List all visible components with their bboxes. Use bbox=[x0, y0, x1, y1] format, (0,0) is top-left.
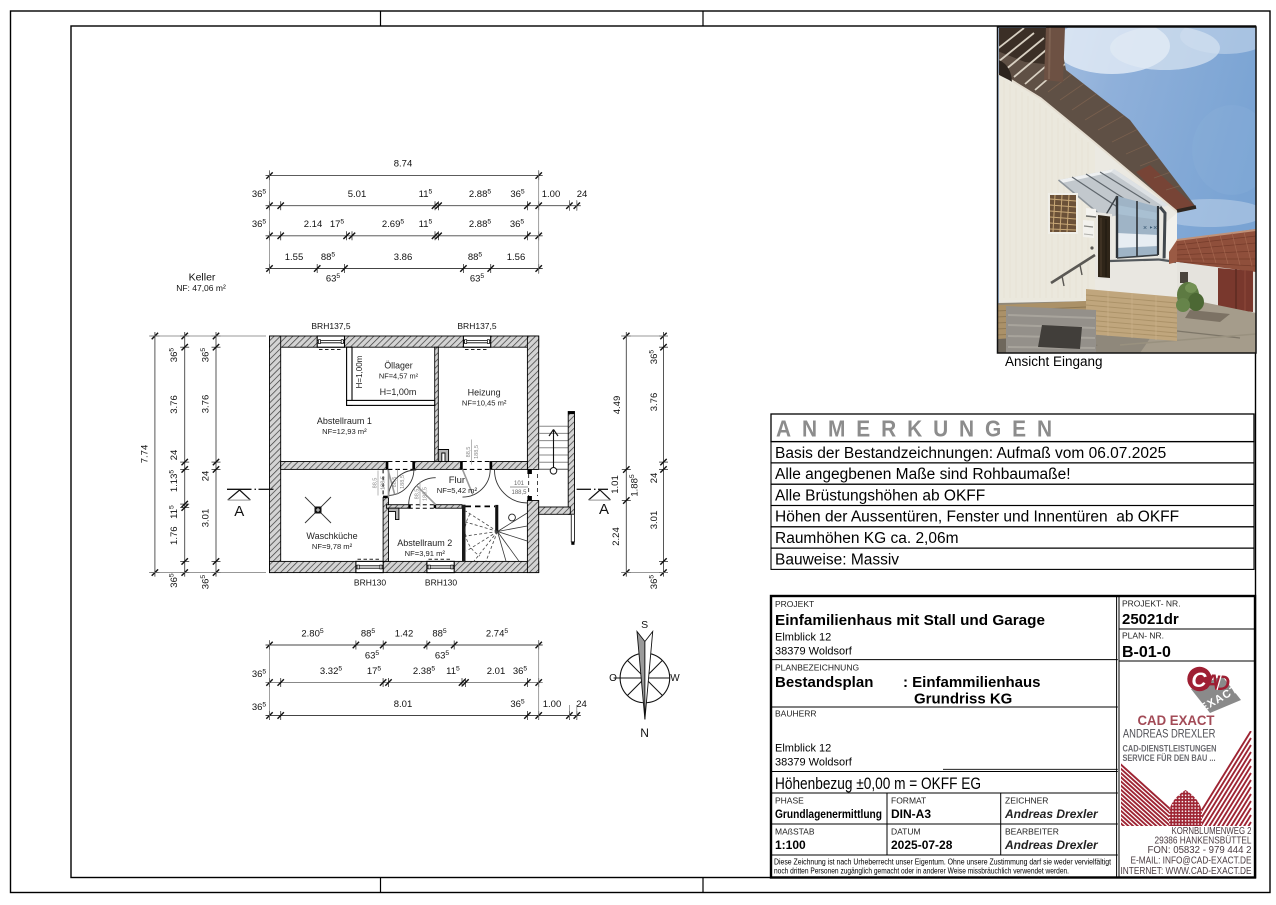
svg-text:88,5: 88,5 bbox=[415, 489, 421, 500]
svg-text:PROJEKT: PROJEKT bbox=[775, 599, 814, 609]
svg-text:Abstellraum 2: Abstellraum 2 bbox=[397, 538, 452, 548]
svg-text:NF=9,78 m²: NF=9,78 m² bbox=[312, 542, 353, 551]
svg-text:24: 24 bbox=[576, 699, 587, 710]
svg-text:88,5: 88,5 bbox=[373, 478, 379, 489]
svg-text:3.76: 3.76 bbox=[169, 395, 180, 414]
svg-text:A: A bbox=[599, 501, 609, 518]
svg-text:Höhen der Aussentüren, Fenster: Höhen der Aussentüren, Fenster und Innen… bbox=[775, 509, 1179, 526]
svg-text:B-01-0: B-01-0 bbox=[1122, 644, 1171, 661]
svg-text:1.01: 1.01 bbox=[610, 475, 621, 494]
svg-text:DATUM: DATUM bbox=[891, 827, 921, 837]
svg-text:1:100: 1:100 bbox=[775, 838, 806, 852]
svg-text:INTERNET: WWW.CAD-EXACT.DE: INTERNET: WWW.CAD-EXACT.DE bbox=[1121, 866, 1252, 877]
svg-text:MAßSTAB: MAßSTAB bbox=[775, 827, 815, 837]
svg-text:D: D bbox=[1215, 672, 1230, 695]
svg-text:Ansicht Eingang: Ansicht Eingang bbox=[1005, 354, 1103, 369]
svg-text:BRH137,5: BRH137,5 bbox=[311, 321, 350, 331]
svg-text:PLANBEZEICHNUNG: PLANBEZEICHNUNG bbox=[775, 663, 859, 673]
svg-text:NF=12,93 m²: NF=12,93 m² bbox=[322, 427, 367, 436]
svg-text:Basis der Bestandzeichnungen:: Basis der Bestandzeichnungen: Aufmaß vom… bbox=[775, 445, 1166, 462]
svg-text:Diese Zeichnung ist nach Urheb: Diese Zeichnung ist nach Urheberrecht un… bbox=[774, 858, 1112, 867]
svg-text:W: W bbox=[670, 673, 680, 684]
svg-text:Bestandsplan: Bestandsplan bbox=[775, 674, 873, 691]
svg-text:188,5: 188,5 bbox=[474, 445, 480, 459]
svg-text:7.74: 7.74 bbox=[140, 445, 151, 464]
svg-text:NF=5,42 m²: NF=5,42 m² bbox=[437, 486, 478, 495]
svg-text:Waschküche: Waschküche bbox=[306, 531, 357, 541]
svg-text:Öllager: Öllager bbox=[384, 361, 412, 371]
svg-text:Alle Brüstungshöhen ab OKFF: Alle Brüstungshöhen ab OKFF bbox=[775, 487, 985, 504]
svg-text:1.00: 1.00 bbox=[542, 189, 561, 200]
svg-text:Elmblick 12: Elmblick 12 bbox=[775, 632, 831, 644]
svg-text:24: 24 bbox=[577, 189, 588, 200]
svg-text:O: O bbox=[609, 673, 617, 684]
svg-text:PHASE: PHASE bbox=[775, 796, 804, 806]
svg-text:BRH130: BRH130 bbox=[354, 578, 386, 588]
svg-text:88,5: 88,5 bbox=[466, 447, 472, 458]
svg-text:188,5: 188,5 bbox=[400, 475, 406, 489]
svg-text:PLAN- NR.: PLAN- NR. bbox=[1122, 631, 1164, 641]
svg-text:ANMERKUNGEN: ANMERKUNGEN bbox=[776, 416, 1063, 442]
svg-text:Andreas Drexler: Andreas Drexler bbox=[1004, 807, 1099, 821]
svg-text:2.24: 2.24 bbox=[611, 527, 622, 546]
svg-text:188,5: 188,5 bbox=[423, 487, 429, 501]
svg-text:CAD EXACT: CAD EXACT bbox=[1138, 712, 1215, 728]
svg-text:FORMAT: FORMAT bbox=[891, 796, 926, 806]
svg-text:A: A bbox=[234, 503, 244, 520]
svg-text:Flur: Flur bbox=[449, 475, 465, 486]
svg-text:2.01: 2.01 bbox=[487, 666, 506, 677]
svg-text:8.01: 8.01 bbox=[394, 699, 413, 710]
svg-text:H=1,00m: H=1,00m bbox=[380, 387, 417, 397]
svg-text:2.14: 2.14 bbox=[304, 219, 323, 230]
svg-text:DIN-A3: DIN-A3 bbox=[891, 807, 931, 821]
svg-text:× ‣×: × ‣× bbox=[1143, 225, 1157, 232]
svg-text:5.01: 5.01 bbox=[348, 189, 367, 200]
svg-text:H=1,00m: H=1,00m bbox=[355, 355, 364, 388]
svg-text:BEARBEITER: BEARBEITER bbox=[1005, 827, 1059, 837]
svg-text:Bauweise: Massiv: Bauweise: Massiv bbox=[775, 551, 899, 568]
svg-text:NF=4,57 m²: NF=4,57 m² bbox=[379, 372, 419, 381]
svg-text:ZEICHNER: ZEICHNER bbox=[1005, 796, 1048, 806]
svg-text:Elmblick 12: Elmblick 12 bbox=[775, 743, 831, 755]
svg-text:Höhenbezug ±0,00 m = OKFF EG: Höhenbezug ±0,00 m = OKFF EG bbox=[775, 775, 981, 793]
svg-text:38379 Woldsorf: 38379 Woldsorf bbox=[775, 646, 853, 658]
svg-text:101: 101 bbox=[514, 481, 525, 487]
svg-text:25021dr: 25021dr bbox=[1122, 611, 1179, 628]
svg-text:BRH130: BRH130 bbox=[425, 578, 457, 588]
svg-text:3.76: 3.76 bbox=[649, 393, 660, 412]
svg-text:Andreas Drexler: Andreas Drexler bbox=[1004, 838, 1099, 852]
svg-text:3.01: 3.01 bbox=[201, 509, 212, 528]
svg-text:188,5: 188,5 bbox=[511, 490, 527, 496]
svg-text:noch dritten Personen zugängli: noch dritten Personen zugänglich gemacht… bbox=[774, 867, 1069, 876]
svg-text:3.86: 3.86 bbox=[394, 252, 413, 263]
svg-text:3.01: 3.01 bbox=[649, 511, 660, 530]
svg-text:8.74: 8.74 bbox=[394, 159, 413, 170]
svg-text:Einfamilienhaus mit Stall und: Einfamilienhaus mit Stall und Garage bbox=[775, 613, 1045, 629]
svg-text:S: S bbox=[641, 619, 648, 631]
svg-text:Alle angegbenen Maße sind Rohb: Alle angegbenen Maße sind Rohbaumaße! bbox=[775, 466, 1071, 483]
svg-text:24: 24 bbox=[201, 471, 212, 482]
svg-text:1.76: 1.76 bbox=[169, 526, 180, 545]
svg-text:2025-07-28: 2025-07-28 bbox=[891, 838, 953, 852]
svg-text:1.42: 1.42 bbox=[395, 629, 414, 640]
svg-text:3.76: 3.76 bbox=[201, 395, 212, 414]
svg-text:NF=10,45 m²: NF=10,45 m² bbox=[462, 399, 507, 408]
svg-text:Abstellraum 1: Abstellraum 1 bbox=[317, 416, 372, 426]
svg-text:Keller: Keller bbox=[189, 272, 216, 284]
svg-text:1.56: 1.56 bbox=[507, 252, 526, 263]
svg-text:Grundriss KG: Grundriss KG bbox=[914, 691, 1012, 708]
svg-text:NF=3,91 m²: NF=3,91 m² bbox=[405, 549, 446, 558]
svg-text:ANDREAS DREXLER: ANDREAS DREXLER bbox=[1123, 729, 1216, 741]
svg-text:188,5: 188,5 bbox=[381, 476, 387, 490]
svg-text:38379 Woldsorf: 38379 Woldsorf bbox=[775, 757, 853, 769]
svg-text:1.55: 1.55 bbox=[285, 252, 304, 263]
svg-text:E-MAIL: INFO@CAD-EXACT.DE: E-MAIL: INFO@CAD-EXACT.DE bbox=[1131, 855, 1252, 866]
svg-text:NF: 47,06 m²: NF: 47,06 m² bbox=[176, 283, 226, 293]
svg-text:Heizung: Heizung bbox=[468, 388, 501, 398]
svg-text:24: 24 bbox=[649, 473, 660, 484]
svg-text:BRH137,5: BRH137,5 bbox=[457, 321, 496, 331]
svg-text:SERVICE FÜR DEN BAU ...: SERVICE FÜR DEN BAU ... bbox=[1123, 753, 1216, 764]
svg-text:Raumhöhen KG ca. 2,06m: Raumhöhen KG ca. 2,06m bbox=[775, 530, 959, 547]
svg-text:1.00: 1.00 bbox=[543, 699, 562, 710]
svg-text:4.49: 4.49 bbox=[612, 396, 623, 415]
svg-text:24: 24 bbox=[169, 450, 180, 461]
svg-text:PROJEKT- NR.: PROJEKT- NR. bbox=[1122, 599, 1181, 609]
svg-text:BAUHERR: BAUHERR bbox=[775, 709, 817, 719]
svg-text:N: N bbox=[640, 726, 649, 740]
svg-text:: Einfammilienhaus: : Einfammilienhaus bbox=[903, 674, 1041, 691]
svg-text:Grundlagenermittlung: Grundlagenermittlung bbox=[775, 807, 882, 821]
